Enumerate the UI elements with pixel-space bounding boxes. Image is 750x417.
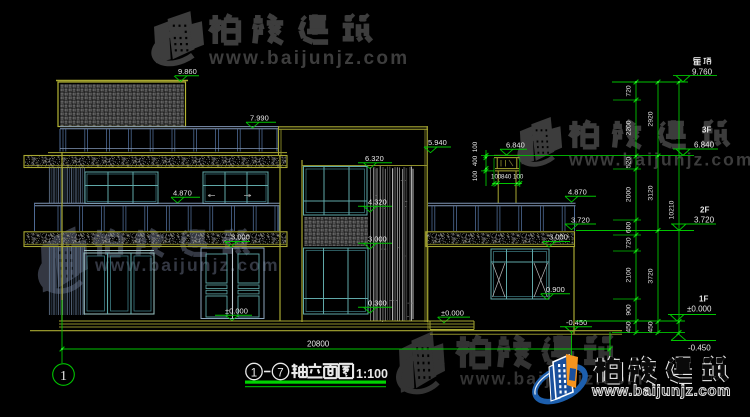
svg-text:3720: 3720 <box>648 268 655 283</box>
svg-text:1:100: 1:100 <box>356 367 388 381</box>
svg-text:10210: 10210 <box>669 200 676 219</box>
svg-text:1: 1 <box>60 369 67 384</box>
svg-text:1F: 1F <box>699 295 708 304</box>
svg-text:720: 720 <box>626 237 633 249</box>
svg-text:6.840: 6.840 <box>694 141 715 150</box>
svg-text:100: 100 <box>513 174 524 181</box>
svg-text:±0.000: ±0.000 <box>225 307 248 316</box>
svg-text:100: 100 <box>472 141 479 152</box>
svg-text:900: 900 <box>626 304 633 316</box>
svg-text:3.720: 3.720 <box>694 216 715 225</box>
svg-text:3.000: 3.000 <box>549 233 568 242</box>
svg-text:3F: 3F <box>702 126 711 135</box>
svg-text:0.300: 0.300 <box>368 299 387 308</box>
svg-text:2F: 2F <box>700 206 709 215</box>
svg-text:www.baijunjz.com: www.baijunjz.com <box>591 383 731 400</box>
svg-text:7.990: 7.990 <box>250 114 269 123</box>
svg-text:-0.450: -0.450 <box>688 344 711 353</box>
svg-text:9.860: 9.860 <box>178 67 197 76</box>
svg-text:100: 100 <box>472 170 479 181</box>
svg-text:4.870: 4.870 <box>568 188 587 197</box>
svg-text:www.baijunjz.com: www.baijunjz.com <box>94 255 280 275</box>
svg-text:2100: 2100 <box>626 267 633 282</box>
svg-text:www.baijunjz.com: www.baijunjz.com <box>208 48 409 69</box>
svg-text:4.320: 4.320 <box>368 198 387 207</box>
svg-text:www.baijunjz.com: www.baijunjz.com <box>568 150 750 170</box>
svg-text:6.840: 6.840 <box>506 141 525 150</box>
svg-text:2200: 2200 <box>626 120 633 135</box>
svg-text:2000: 2000 <box>626 187 633 202</box>
svg-text:1: 1 <box>251 368 257 380</box>
svg-text:±0.000: ±0.000 <box>441 308 464 317</box>
svg-text:400: 400 <box>472 155 479 166</box>
svg-text:450: 450 <box>648 321 655 333</box>
svg-text:450: 450 <box>626 321 633 333</box>
svg-text:3.000: 3.000 <box>368 235 387 244</box>
svg-text:7: 7 <box>277 368 283 380</box>
svg-text:520: 520 <box>626 157 633 169</box>
svg-text:720: 720 <box>626 85 633 97</box>
svg-text:4.870: 4.870 <box>173 189 192 198</box>
svg-text:2920: 2920 <box>648 111 655 126</box>
svg-text:20800: 20800 <box>307 340 330 349</box>
svg-text:840: 840 <box>501 174 512 181</box>
svg-text:6.320: 6.320 <box>365 154 384 163</box>
svg-text:600: 600 <box>626 222 633 234</box>
svg-text:±0.000: ±0.000 <box>687 305 712 314</box>
svg-text:3.000: 3.000 <box>231 233 250 242</box>
svg-text:3.720: 3.720 <box>571 215 590 224</box>
svg-text:-0.450: -0.450 <box>566 318 587 327</box>
svg-text:0.900: 0.900 <box>546 285 565 294</box>
svg-text:5.940: 5.940 <box>428 138 447 147</box>
svg-text:3120: 3120 <box>648 185 655 200</box>
